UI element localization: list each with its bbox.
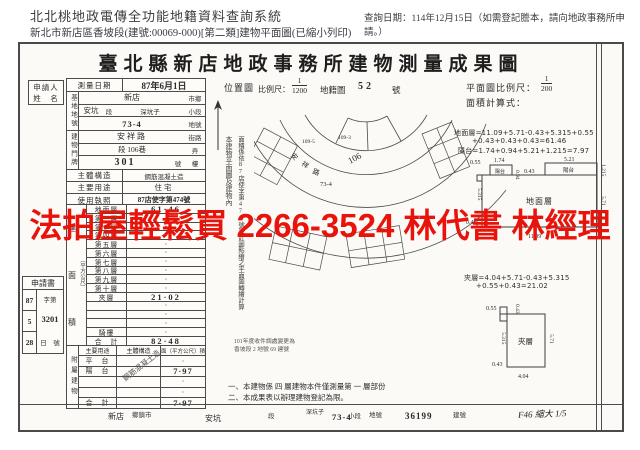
section-suffix: 段 xyxy=(103,105,115,117)
footer-lot-label: 地號 xyxy=(369,409,382,419)
mezz-dim-0-43: 0.43 xyxy=(514,304,520,314)
footer-section-label: 段 xyxy=(268,410,275,420)
renumber-note: 101年度收件調處變更為 香坡段 2 地號 69 建號 xyxy=(234,338,295,354)
map-scale-numerator: 1 xyxy=(292,77,307,85)
subsection-value: 深坑子 xyxy=(115,105,185,117)
footer-building-label: 建號 xyxy=(453,409,466,419)
town-value: 新店 xyxy=(79,92,185,104)
usage-value: 住宅 xyxy=(123,182,205,193)
application-doc-number: 3201 xyxy=(37,308,63,330)
application-label: 申請書 xyxy=(23,277,63,289)
road-name-char: 祥 xyxy=(300,159,311,170)
house-number-suffix: 號 xyxy=(171,156,185,169)
footer-divider xyxy=(20,404,622,405)
map-scale-fraction: 1 1200 xyxy=(292,77,307,94)
mezz-dim-5-71: 5.71 xyxy=(548,334,554,344)
application-doc-suffix: 日 號 xyxy=(37,330,63,353)
mezzanine-plan: 0.55 0.43 5.315 0.43 4.04 5.71 夾層 xyxy=(458,292,588,402)
street-suffix: 街路 xyxy=(185,131,205,143)
footer-building-number: 36199 xyxy=(405,411,433,421)
map-lot-109-3: 109-3 xyxy=(338,135,351,141)
area-calc-label: 面積計算式： xyxy=(466,96,526,109)
floor-label: 第八層 xyxy=(87,267,127,275)
annex-area: · xyxy=(161,356,205,365)
application-number-box: 申請書 87 5 28 字第 3201 日 號 xyxy=(22,276,64,354)
document-subtitle: 新北市新店區香坡段(建號:00069-000)[第二類]建物平面圖(已縮小列印) xyxy=(30,25,351,40)
floor-label xyxy=(87,311,127,319)
plan-scale-denominator: 200 xyxy=(541,83,552,93)
applicant-label-2: 姓 名 xyxy=(33,93,59,104)
address-rows: 安祥路 街路 段 106巷 弄 301 號 樓 xyxy=(79,131,205,169)
dim-1-74: 1.74 xyxy=(494,158,505,164)
road-name-char: 安 xyxy=(289,151,300,162)
mezz-dim-0-43b: 0.43 xyxy=(492,362,503,368)
address-group: 建物門牌 安祥路 街路 段 106巷 弄 301 號 樓 xyxy=(67,131,205,170)
footer-lot-value: 73-4 xyxy=(332,412,352,422)
annex-use: 陽 台 xyxy=(79,367,117,376)
section-value: 安坑 xyxy=(79,105,103,117)
land-lot-group: 基地地號 新店 市鄉 安坑 段 深坑子 小段 73-4 地號 xyxy=(67,92,205,131)
application-date-col: 87 5 28 xyxy=(23,290,37,353)
floor-value: · xyxy=(127,311,205,319)
query-system-page: 北北桃地政電傳全功能地籍資料查詢系統 新北市新店區香坡段(建號:00069-00… xyxy=(0,0,640,450)
structure-label: 主體構造 xyxy=(67,170,123,181)
floor-value: · xyxy=(127,328,205,336)
map-road-number: 106 xyxy=(346,150,363,165)
floor-label: 夾層 xyxy=(87,293,127,301)
footer-town-value: 新店 xyxy=(108,411,124,422)
application-number-col: 字第 3201 日 號 xyxy=(37,290,63,353)
cadastral-sheet-label: 地籍圖 xyxy=(320,84,346,96)
table-row: 主要用途 住宅 xyxy=(67,182,205,194)
table-row: 301 號 樓 xyxy=(79,156,205,169)
annex-col-use: 主要用途 xyxy=(79,346,117,355)
footer-subsection-value: 深坑子 xyxy=(306,407,324,416)
floor-area-label-char: 面 xyxy=(68,270,76,281)
note-line1: 一、本建物係 四 層建物本件僅測量第 一 層部份 xyxy=(228,381,386,392)
floor-area-unit: （平方公尺） xyxy=(77,257,86,346)
renumber-note-line1: 101年度收件調處變更為 xyxy=(234,338,295,346)
floor-label: 第十層 xyxy=(87,284,127,292)
balcony-label-small: 陽台 xyxy=(495,168,505,175)
survey-date-value: 87年6月1日 xyxy=(123,79,205,91)
floor-suffix: 樓 xyxy=(185,156,205,169)
table-row: 73-4 地號 xyxy=(79,117,205,130)
floor-value: · xyxy=(127,319,205,327)
handwritten-annotation: F46 縮大 1/5 xyxy=(518,406,567,421)
annex-area: 7·97 xyxy=(161,367,205,376)
lane-suffix: 弄 xyxy=(185,144,205,156)
query-date: 查詢日期：114年12月15日（如需登記謄本，請向地政事務所申請。） xyxy=(364,10,640,38)
annex-use xyxy=(79,388,117,397)
footer-section-value: 安坑 xyxy=(205,413,221,424)
location-map-label: 位置圖 xyxy=(224,81,254,94)
floor-area-label-char: 積 xyxy=(68,317,76,328)
side-annotation-col1: 本建物平面圖及建物內 xyxy=(224,136,234,206)
mezz-dim-4-04: 4.04 xyxy=(518,374,529,380)
cadastral-sheet-number: 52 xyxy=(358,81,374,92)
lot-number-value: 73-4 xyxy=(79,117,185,130)
mezz-calc-line2: +0.55+0.43=21.02 xyxy=(476,282,548,290)
dim-0-55: 0.55 xyxy=(470,160,481,166)
application-month: 5 xyxy=(23,311,36,331)
annex-use xyxy=(79,377,117,386)
table-row: 段 106巷 弄 xyxy=(79,144,205,157)
floor-value: · xyxy=(127,302,205,310)
floor-label xyxy=(87,302,127,310)
applicant-name-box: 申請人 姓 名 xyxy=(28,80,64,105)
annex-label: 附屬建物 xyxy=(67,346,79,408)
balcony-label-big: 陽台 xyxy=(563,166,575,174)
note-line2: 二、本成果表以辦理建物登記為限。 xyxy=(228,392,386,403)
floor-label: 第六層 xyxy=(87,249,127,257)
application-day: 28 xyxy=(23,332,36,353)
mezzanine-label: 夾層 xyxy=(518,337,533,346)
realtor-watermark: 法拍屋輕鬆買 2266-3524 林代書 林經理 xyxy=(0,199,640,247)
plan-scale-label: 平面圖比例尺： xyxy=(466,81,536,94)
floor-label: 第七層 xyxy=(87,258,127,266)
floor-label: 騎樓 xyxy=(87,328,127,336)
mezz-dim-0-55: 0.55 xyxy=(486,306,497,312)
building-info-table: 測量日期 87年6月1日 基地地號 新店 市鄉 安坑 段 深坑子 小段 xyxy=(66,78,206,207)
floor-value: · xyxy=(127,275,205,283)
mezz-dim-5-315: 5.315 xyxy=(500,332,506,345)
ground-calc-line2: +0.43+0.43+0.43=61.46 xyxy=(472,137,566,145)
table-row: 主體構造 鋼筋混凝土造 xyxy=(67,170,205,182)
road-name-char: 路 xyxy=(311,167,321,178)
lane-value: 段 106巷 xyxy=(79,144,185,156)
annex-use: 平 台 xyxy=(79,356,117,365)
map-scale-denominator: 1200 xyxy=(292,85,307,95)
cadastral-sheet-suffix: 號 xyxy=(392,84,401,96)
applicant-label-1: 申請人 xyxy=(33,82,59,93)
table-row: 測量日期 87年6月1日 xyxy=(67,79,205,92)
lot-number-suffix: 地號 xyxy=(185,117,205,130)
land-lot-rows: 新店 市鄉 安坑 段 深坑子 小段 73-4 地號 xyxy=(79,92,205,130)
table-row: 安坑 段 深坑子 小段 xyxy=(79,105,205,118)
street-value: 安祥路 xyxy=(79,131,185,143)
application-year: 87 xyxy=(23,290,36,310)
structure-value: 鋼筋混凝土造 xyxy=(123,170,205,181)
map-lot-109-5: 109-5 xyxy=(302,139,315,145)
plan-scale-numerator: 1 xyxy=(541,75,552,83)
annex-building-table: 附屬建物 主要用途 主體構造 面（平方公尺）積 平 台· 陽 台7·97 · ·… xyxy=(66,345,206,409)
floor-label xyxy=(87,319,127,327)
floor-value: · xyxy=(127,249,205,257)
floor-value: 21·02 xyxy=(127,293,205,301)
annex-area: · xyxy=(161,377,205,386)
dim-0-94: 0.94 xyxy=(514,170,520,180)
floor-value: · xyxy=(127,258,205,266)
map-lot-main: 73-4 xyxy=(320,181,333,188)
land-lot-label: 基地地號 xyxy=(67,92,79,130)
address-label: 建物門牌 xyxy=(67,131,79,169)
survey-notes: 一、本建物係 四 層建物本件僅測量第 一 層部份 二、本成果表以辦理建物登記為限… xyxy=(228,381,386,403)
renumber-note-line2: 香坡段 2 地號 69 建號 xyxy=(234,346,295,354)
usage-label: 主要用途 xyxy=(67,182,123,193)
dim-0-43: 0.43 xyxy=(524,169,535,175)
town-suffix: 市鄉 xyxy=(185,92,205,104)
house-number: 301 xyxy=(79,156,171,169)
floor-value: · xyxy=(127,267,205,275)
floor-label: 第九層 xyxy=(87,275,127,283)
subsection-suffix: 小段 xyxy=(185,105,205,117)
map-scale-label: 比例尺： xyxy=(258,84,290,95)
plan-scale-fraction: 1 200 xyxy=(541,75,552,92)
footer-town-label: 鄉鎮市 xyxy=(132,409,152,419)
system-title: 北北桃地政電傳全功能地籍資料查詢系統 xyxy=(30,6,282,25)
table-row: 新店 市鄉 xyxy=(79,92,205,105)
annex-area: · xyxy=(161,388,205,397)
table-row: 安祥路 街路 xyxy=(79,131,205,144)
annex-rows: 主要用途 主體構造 面（平方公尺）積 平 台· 陽 台7·97 · · 合 計7… xyxy=(79,346,205,408)
survey-date-label: 測量日期 xyxy=(67,79,123,91)
annex-col-area: 面（平方公尺）積 xyxy=(161,346,205,355)
floor-value: · xyxy=(127,284,205,292)
survey-title: 臺北縣新店地政事務所建物測量成果圖 xyxy=(80,49,542,76)
application-doc-prefix: 字第 xyxy=(37,290,63,308)
dim-5-21: 5.21 xyxy=(564,157,575,163)
